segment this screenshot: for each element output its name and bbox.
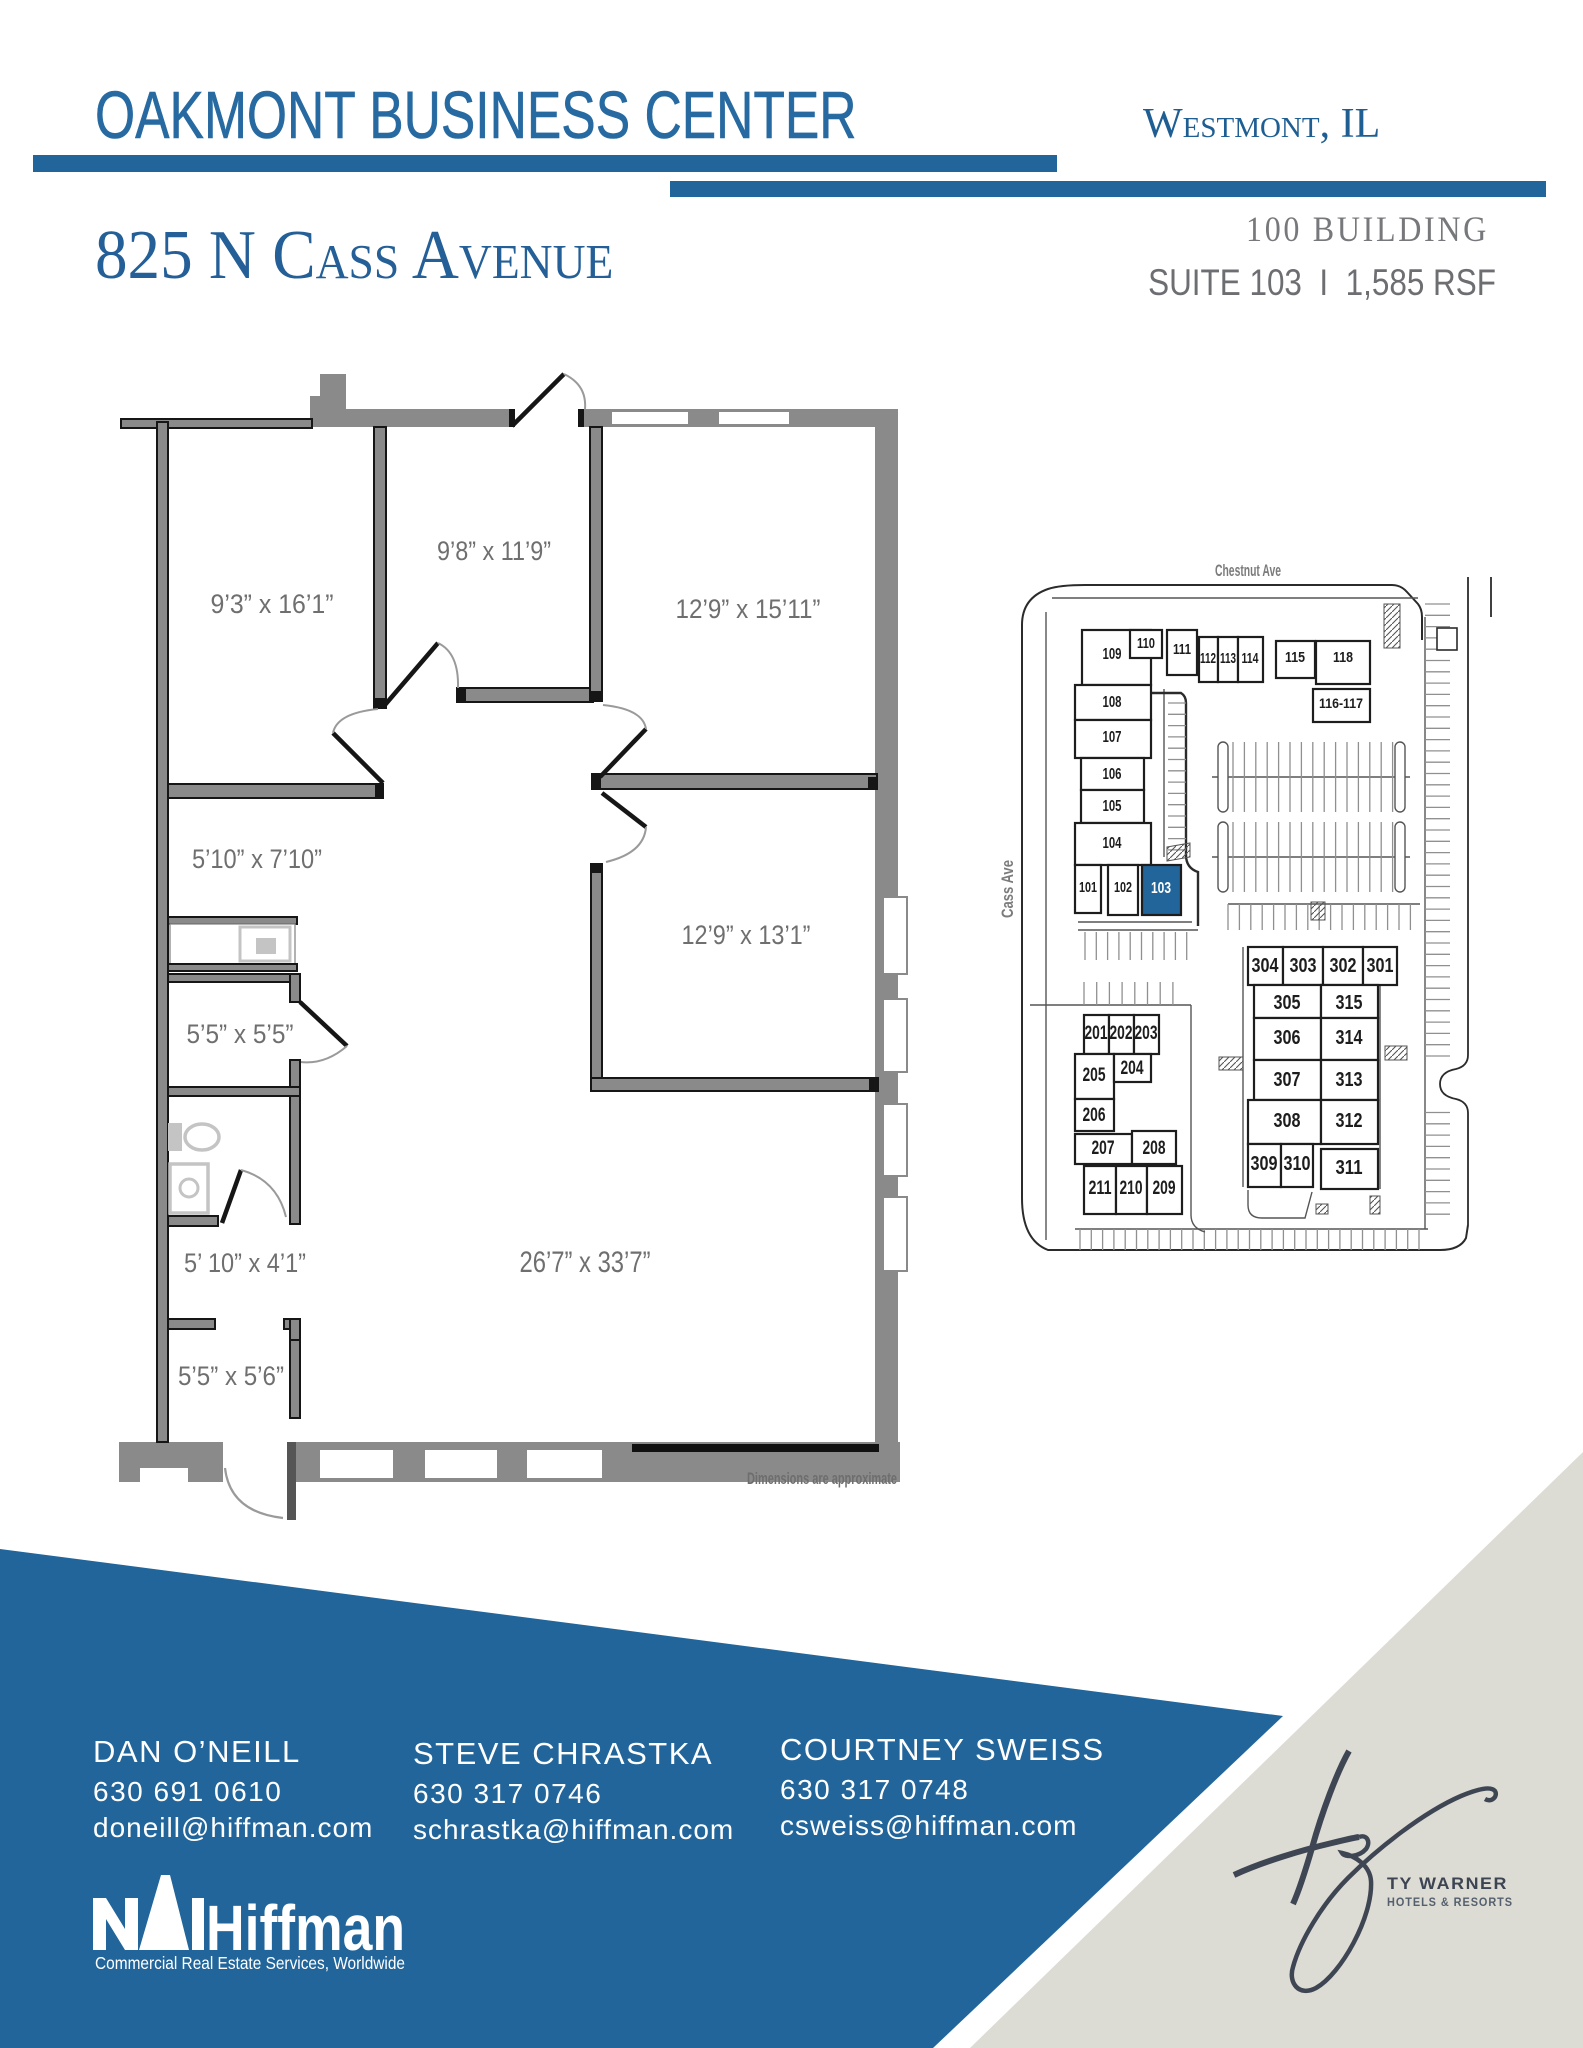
svg-text:301: 301 xyxy=(1367,955,1394,977)
svg-text:211: 211 xyxy=(1089,1178,1112,1199)
svg-text:202: 202 xyxy=(1110,1023,1133,1044)
svg-text:12’9” x 15’11”: 12’9” x 15’11” xyxy=(676,594,821,624)
svg-text:313: 313 xyxy=(1336,1069,1363,1091)
svg-text:113: 113 xyxy=(1220,650,1236,667)
svg-text:108: 108 xyxy=(1103,694,1122,711)
svg-text:210: 210 xyxy=(1120,1178,1143,1199)
svg-text:307: 307 xyxy=(1274,1069,1301,1091)
svg-text:12’9” x 13’1”: 12’9” x 13’1” xyxy=(682,920,811,950)
svg-text:311: 311 xyxy=(1336,1157,1363,1179)
svg-text:204: 204 xyxy=(1121,1058,1144,1079)
svg-text:305: 305 xyxy=(1274,992,1301,1014)
svg-text:207: 207 xyxy=(1092,1138,1115,1159)
svg-text:111: 111 xyxy=(1173,641,1191,658)
svg-text:114: 114 xyxy=(1242,650,1259,667)
svg-text:5’ 10” x 4’1”: 5’ 10” x 4’1” xyxy=(184,1248,306,1278)
svg-text:205: 205 xyxy=(1083,1065,1106,1086)
svg-text:101: 101 xyxy=(1079,879,1097,896)
svg-text:312: 312 xyxy=(1336,1110,1363,1132)
svg-text:5’5” x 5’5”: 5’5” x 5’5” xyxy=(187,1019,294,1049)
svg-text:5’10” x 7’10”: 5’10” x 7’10” xyxy=(192,844,322,874)
svg-text:203: 203 xyxy=(1135,1023,1158,1044)
svg-text:310: 310 xyxy=(1284,1153,1311,1175)
svg-text:9’3” x 16’1”: 9’3” x 16’1” xyxy=(211,589,334,619)
svg-text:26’7” x 33’7”: 26’7” x 33’7” xyxy=(520,1246,651,1279)
svg-text:106: 106 xyxy=(1103,766,1122,783)
svg-text:Dimensions are approximate: Dimensions are approximate xyxy=(747,1469,897,1488)
svg-text:306: 306 xyxy=(1274,1027,1301,1049)
svg-text:TY WARNER: TY WARNER xyxy=(1387,1874,1508,1893)
svg-text:304: 304 xyxy=(1252,955,1280,977)
svg-text:110: 110 xyxy=(1137,635,1155,652)
svg-text:308: 308 xyxy=(1274,1110,1301,1132)
svg-text:Cass Ave: Cass Ave xyxy=(998,860,1017,918)
svg-text:115: 115 xyxy=(1285,649,1305,666)
svg-text:5’5” x 5’6”: 5’5” x 5’6” xyxy=(178,1361,284,1391)
svg-text:Chestnut Ave: Chestnut Ave xyxy=(1215,561,1281,580)
svg-text:201: 201 xyxy=(1085,1023,1108,1044)
svg-text:Commercial Real Estate Service: Commercial Real Estate Services, Worldwi… xyxy=(95,1953,405,1973)
svg-text:112: 112 xyxy=(1200,650,1216,667)
svg-text:118: 118 xyxy=(1333,649,1353,666)
svg-text:315: 315 xyxy=(1336,992,1363,1014)
svg-text:9’8” x 11’9”: 9’8” x 11’9” xyxy=(437,536,551,566)
svg-text:116-117: 116-117 xyxy=(1319,695,1363,711)
svg-text:107: 107 xyxy=(1103,729,1122,746)
svg-text:302: 302 xyxy=(1330,955,1357,977)
svg-text:105: 105 xyxy=(1103,798,1122,815)
svg-text:HOTELS & RESORTS: HOTELS & RESORTS xyxy=(1387,1897,1513,1909)
svg-text:104: 104 xyxy=(1103,835,1122,852)
svg-text:208: 208 xyxy=(1143,1138,1166,1159)
svg-text:209: 209 xyxy=(1153,1178,1176,1199)
svg-text:109: 109 xyxy=(1103,646,1122,663)
svg-text:102: 102 xyxy=(1114,879,1132,896)
svg-text:103: 103 xyxy=(1151,880,1171,897)
svg-text:314: 314 xyxy=(1336,1027,1364,1049)
svg-text:309: 309 xyxy=(1251,1153,1278,1175)
svg-text:303: 303 xyxy=(1290,955,1317,977)
svg-text:206: 206 xyxy=(1083,1105,1106,1126)
